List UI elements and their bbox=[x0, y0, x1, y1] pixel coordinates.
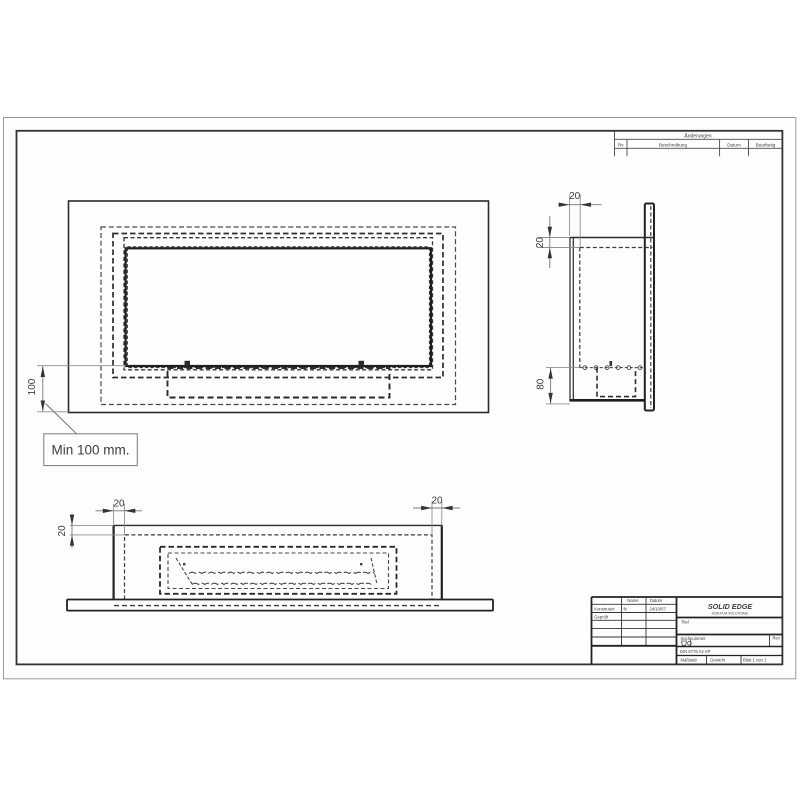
svg-text:20: 20 bbox=[113, 499, 125, 510]
svg-text:Gewicht: Gewicht bbox=[710, 658, 726, 663]
svg-text:20: 20 bbox=[431, 496, 443, 507]
svg-text:EDS-PLM SOLUTIONS: EDS-PLM SOLUTIONS bbox=[712, 612, 748, 616]
svg-text:Datum: Datum bbox=[727, 142, 741, 147]
svg-text:100: 100 bbox=[27, 378, 38, 395]
svg-text:20: 20 bbox=[569, 191, 581, 202]
svg-text:Min 100 mm.: Min 100 mm. bbox=[51, 443, 129, 458]
svg-text:Änderungen: Änderungen bbox=[684, 133, 711, 140]
svg-text:SOLID EDGE: SOLID EDGE bbox=[708, 602, 753, 611]
svg-text:Bearbeitg: Bearbeitg bbox=[756, 142, 776, 147]
svg-text:Datum: Datum bbox=[650, 598, 663, 603]
svg-text:20: 20 bbox=[57, 525, 68, 537]
svg-text:DIN 6776 A2 SP: DIN 6776 A2 SP bbox=[680, 649, 711, 654]
svg-text:Beschreibung: Beschreibung bbox=[659, 142, 688, 147]
svg-text:Name: Name bbox=[627, 598, 639, 603]
svg-text:Sachnummer: Sachnummer bbox=[681, 636, 707, 641]
svg-text:Rv: Rv bbox=[618, 142, 624, 147]
svg-text:Titel: Titel bbox=[681, 620, 689, 625]
svg-text:Maßstab: Maßstab bbox=[681, 658, 698, 663]
svg-text:fs: fs bbox=[624, 607, 627, 612]
svg-text:Geprüft: Geprüft bbox=[594, 614, 609, 619]
svg-text:80: 80 bbox=[536, 378, 547, 390]
svg-text:20: 20 bbox=[535, 237, 546, 249]
svg-text:24/10/07: 24/10/07 bbox=[650, 607, 667, 612]
svg-text:Konstruiert: Konstruiert bbox=[594, 607, 615, 612]
svg-text:Blatt 1 von 1: Blatt 1 von 1 bbox=[743, 658, 767, 663]
svg-text:Rev: Rev bbox=[773, 636, 781, 641]
